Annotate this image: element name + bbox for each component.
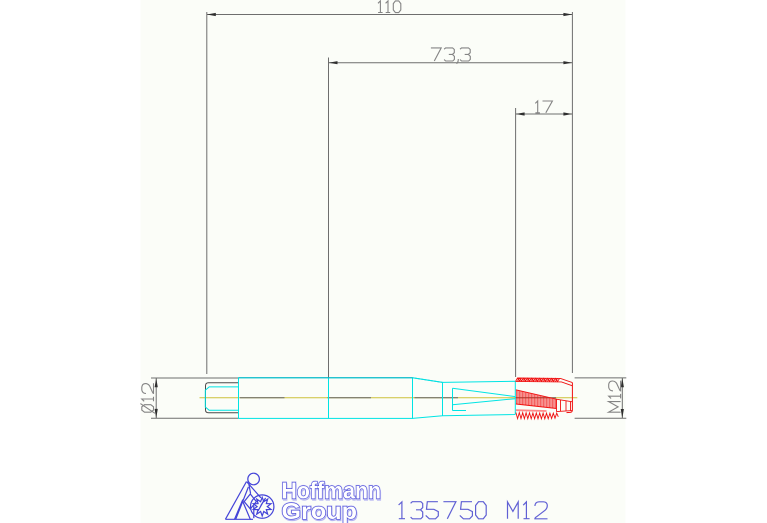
svg-text:Group: Group	[282, 498, 358, 523]
